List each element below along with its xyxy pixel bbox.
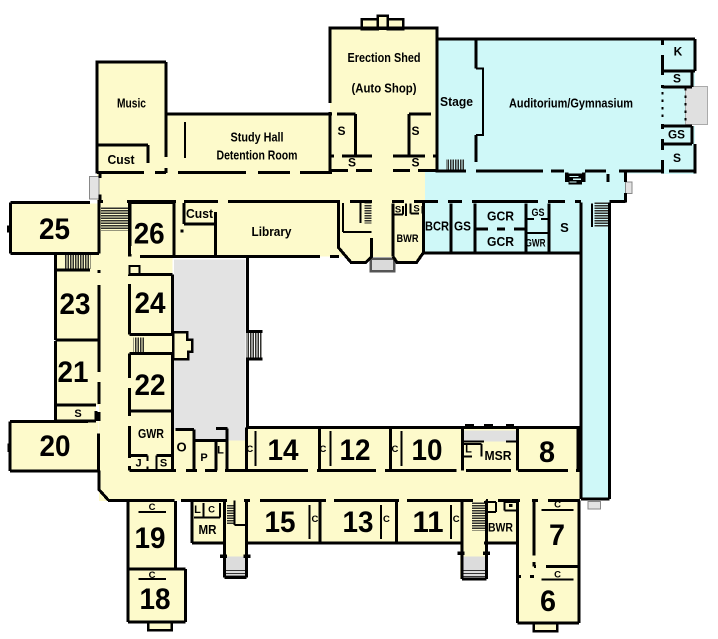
- svg-text:MR: MR: [199, 522, 218, 537]
- svg-text:O: O: [176, 439, 186, 454]
- svg-text:19: 19: [135, 522, 166, 555]
- svg-text:GS: GS: [532, 207, 545, 219]
- svg-text:P: P: [200, 452, 207, 464]
- svg-text:J: J: [135, 458, 141, 470]
- svg-text:GWR: GWR: [138, 426, 164, 441]
- svg-text:Library: Library: [252, 224, 293, 239]
- svg-text:GCR: GCR: [487, 209, 515, 224]
- svg-text:C: C: [319, 444, 326, 455]
- svg-text:C: C: [149, 570, 156, 581]
- svg-text:L: L: [217, 445, 224, 457]
- svg-text:GS: GS: [668, 128, 685, 142]
- svg-text:13: 13: [343, 506, 374, 539]
- svg-text:GCR: GCR: [487, 234, 515, 249]
- svg-text:Auditorium/Gymnasium: Auditorium/Gymnasium: [509, 96, 633, 111]
- svg-text:BCR: BCR: [425, 219, 450, 234]
- svg-text:C: C: [554, 500, 561, 511]
- svg-text:L: L: [194, 504, 201, 516]
- svg-text:MSR: MSR: [485, 448, 513, 463]
- svg-text:Music: Music: [117, 96, 146, 111]
- svg-text:BWR: BWR: [397, 233, 419, 245]
- svg-text:C: C: [453, 514, 460, 525]
- svg-text:S: S: [673, 151, 681, 165]
- svg-text:S: S: [411, 124, 419, 138]
- svg-text:K: K: [674, 45, 683, 59]
- svg-text:22: 22: [135, 369, 166, 402]
- svg-text:BWR: BWR: [488, 520, 513, 534]
- svg-text:11: 11: [413, 506, 444, 539]
- svg-text:(Auto Shop): (Auto Shop): [352, 81, 417, 96]
- svg-text:S: S: [395, 205, 401, 216]
- svg-text:GS: GS: [454, 219, 471, 234]
- svg-text:26: 26: [134, 217, 165, 250]
- svg-text:S: S: [160, 458, 167, 470]
- svg-text:S: S: [560, 220, 569, 235]
- svg-text:18: 18: [140, 583, 171, 616]
- svg-text:8: 8: [539, 436, 555, 469]
- svg-text:C: C: [246, 444, 253, 455]
- svg-text:S: S: [74, 408, 81, 420]
- svg-text:25: 25: [39, 213, 70, 246]
- svg-text:Erection Shed: Erection Shed: [348, 50, 421, 65]
- svg-text:Study Hall: Study Hall: [231, 130, 284, 145]
- svg-text:6: 6: [540, 585, 556, 618]
- svg-text:Cust: Cust: [186, 206, 214, 221]
- svg-text:C: C: [208, 504, 215, 515]
- svg-text:Stage: Stage: [440, 94, 473, 109]
- svg-text:7: 7: [549, 519, 565, 552]
- svg-text:14: 14: [268, 434, 299, 467]
- svg-text:C: C: [149, 502, 156, 513]
- svg-text:20: 20: [40, 430, 71, 463]
- svg-text:10: 10: [412, 434, 443, 467]
- svg-text:24: 24: [135, 287, 166, 320]
- svg-text:C: C: [554, 569, 561, 580]
- svg-text:C: C: [311, 514, 318, 525]
- svg-text:S: S: [673, 72, 681, 86]
- svg-text:Detention Room: Detention Room: [217, 148, 298, 163]
- svg-text:S: S: [411, 156, 419, 170]
- svg-text:C: C: [383, 514, 390, 525]
- svg-text:GWR: GWR: [526, 238, 546, 250]
- svg-text:12: 12: [340, 434, 371, 467]
- svg-text:15: 15: [265, 506, 296, 539]
- svg-text:L: L: [465, 444, 472, 456]
- svg-text:S: S: [413, 204, 419, 215]
- svg-text:21: 21: [58, 356, 89, 389]
- svg-text:S: S: [348, 156, 356, 170]
- svg-text:S: S: [337, 124, 345, 138]
- svg-text:C: C: [391, 444, 398, 455]
- svg-text:23: 23: [60, 288, 91, 321]
- svg-text:Cust: Cust: [108, 152, 136, 167]
